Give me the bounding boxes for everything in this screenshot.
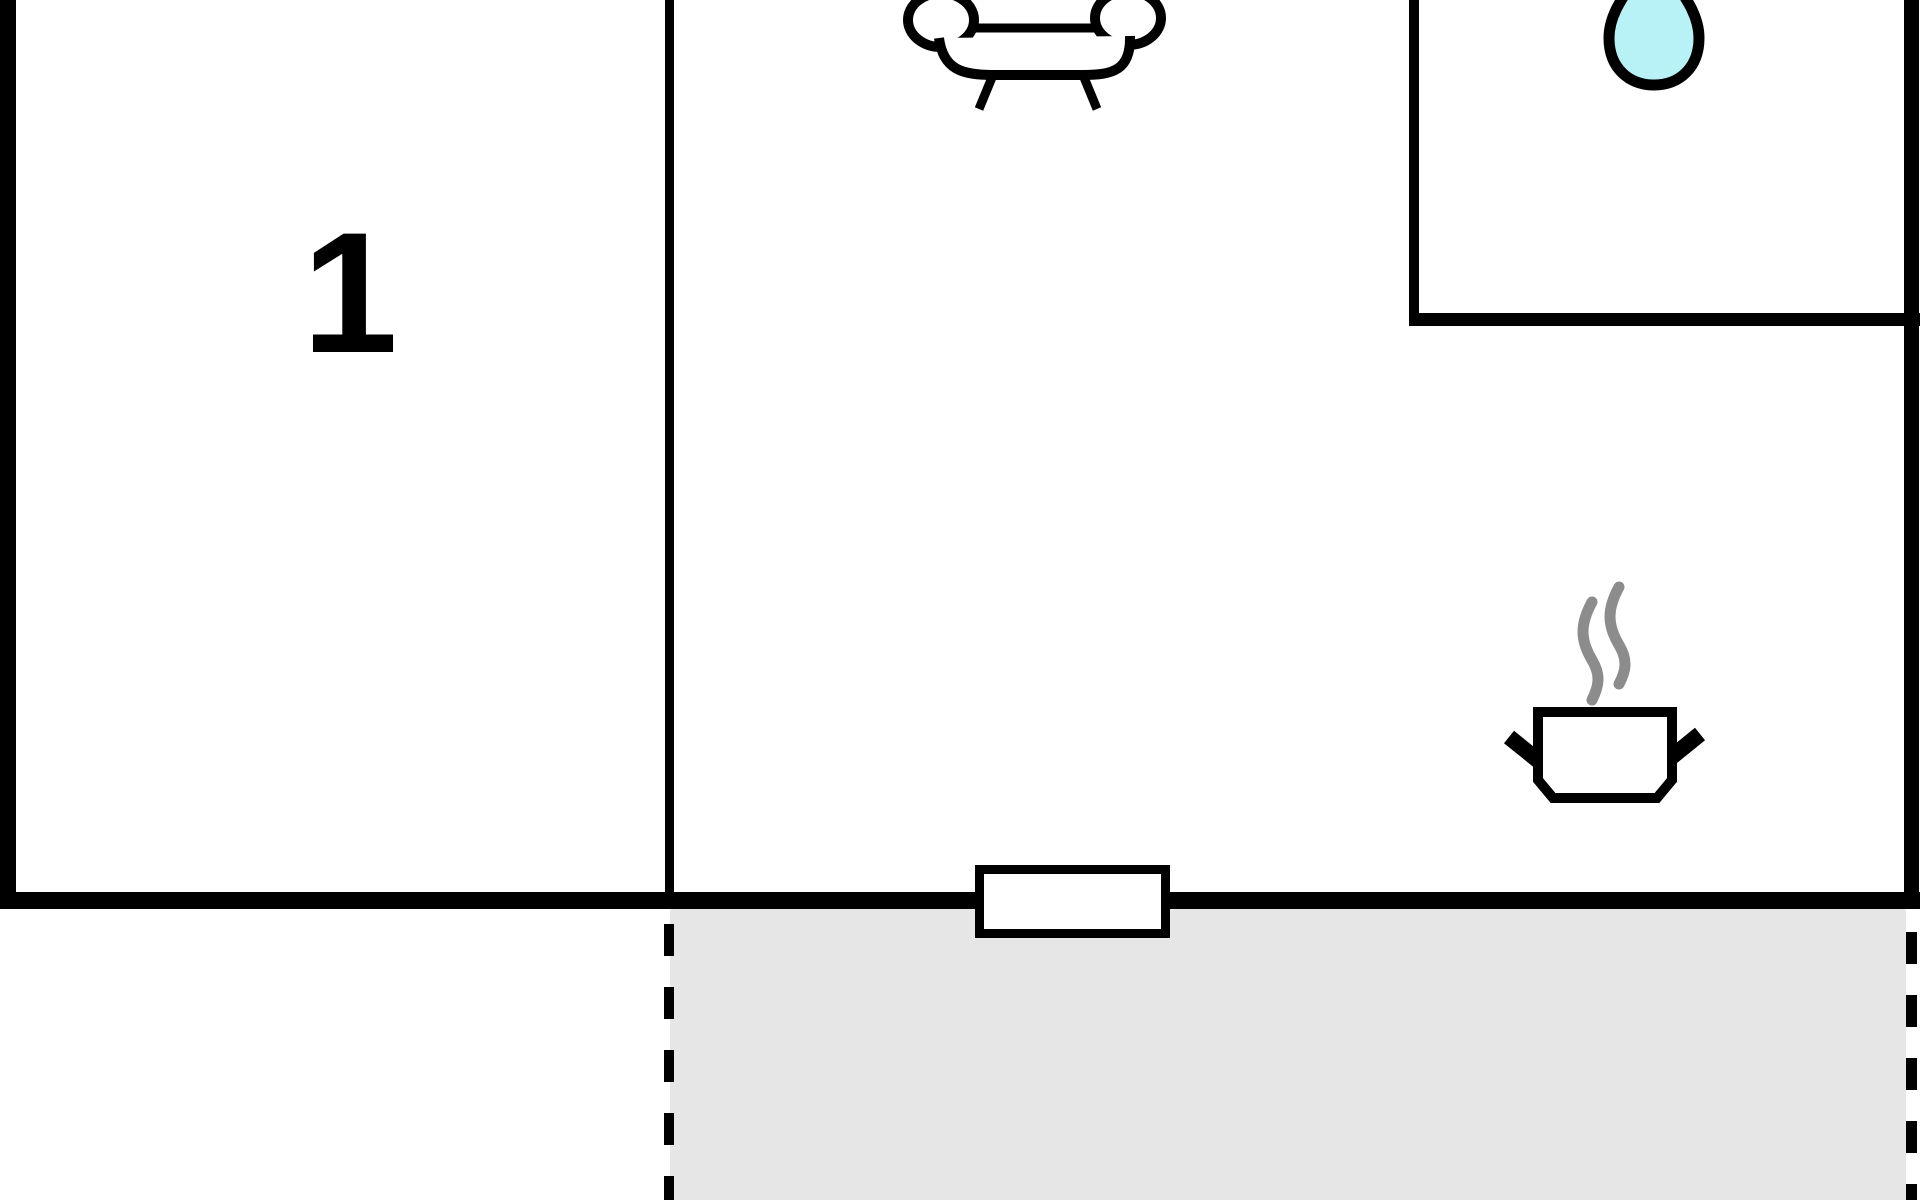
wall-bottom	[0, 892, 1920, 909]
wall-interior-room1	[665, 0, 674, 909]
window	[975, 865, 1170, 938]
wall-left	[0, 0, 16, 909]
terrace-dashed-border-right	[1906, 932, 1917, 1200]
sofa-icon	[893, 0, 1173, 140]
wall-right	[1904, 0, 1919, 909]
terrace-dashed-border-left	[664, 924, 674, 1200]
wall-bathroom-left	[1409, 0, 1419, 326]
steam-line	[1610, 587, 1625, 684]
room1-label: 1	[255, 207, 445, 379]
wall-bathroom-bottom	[1409, 313, 1920, 326]
cooking-pot-icon	[1478, 572, 1718, 812]
water-drop-icon	[1596, 0, 1714, 94]
pot-body	[1538, 712, 1672, 798]
terrace-area	[670, 908, 1906, 1200]
steam-line	[1583, 602, 1598, 700]
